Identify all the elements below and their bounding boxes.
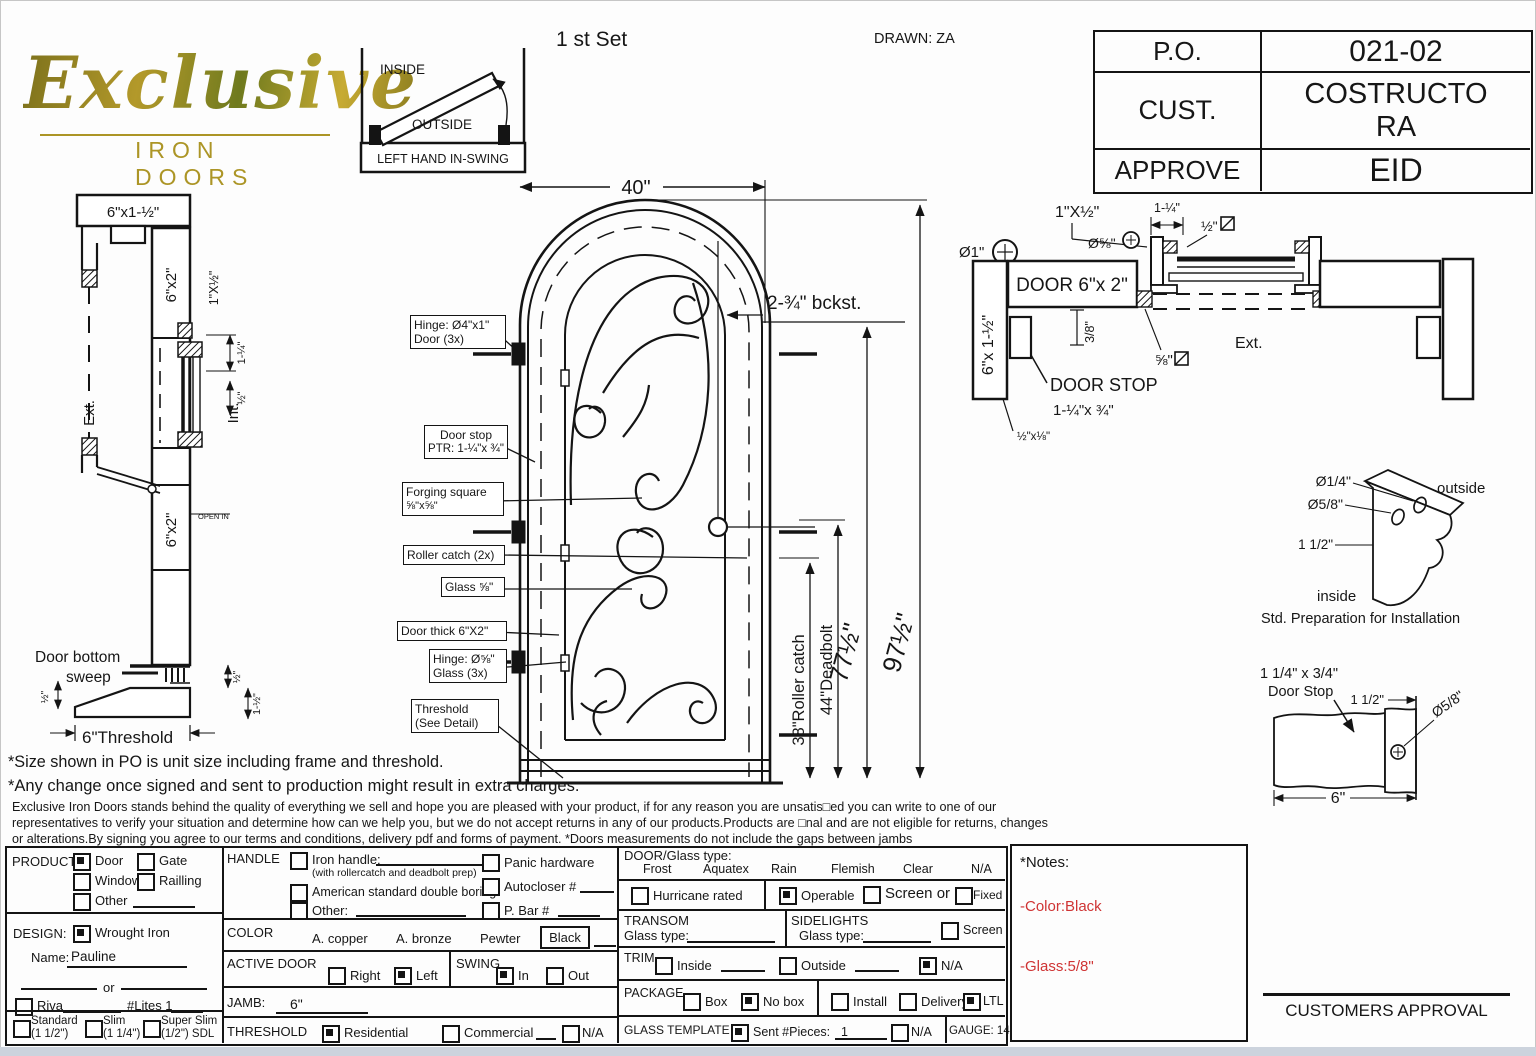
install-label: Install — [853, 994, 887, 1009]
deadbolt-dim-label: 44"Deadbolt — [818, 624, 836, 715]
checkbox-threshold-na[interactable] — [562, 1025, 580, 1043]
slim-size-label: (1 1/4") — [103, 1028, 140, 1040]
checkbox-operable[interactable] — [779, 887, 797, 905]
callout-forging: Forging square ⅝"x⅝" — [402, 482, 504, 516]
hatch-block — [82, 270, 97, 287]
std-prep-detail: Ø1/4" Ø5/8" 1 1/2" outside inside Std. P… — [1255, 455, 1536, 630]
dim-half-left: ½" — [39, 690, 51, 703]
callout-threshold-line1: Threshold — [415, 702, 495, 716]
glass-clamp — [178, 432, 202, 447]
drawing-sheet: Exclusive IRON DOORS INSIDE OUTSIDE LEFT… — [0, 0, 1536, 1056]
glass-aquatex-label: Aquatex — [703, 862, 749, 876]
checkbox-trim-na[interactable] — [919, 957, 937, 975]
glass-flemish-label: Flemish — [831, 862, 875, 876]
divider — [785, 911, 787, 946]
threshold-residential-label: Residential — [344, 1025, 408, 1040]
threshold-na-label: N/A — [582, 1025, 604, 1040]
checkbox-ltl[interactable] — [963, 993, 981, 1011]
checkbox-trim-inside[interactable] — [655, 957, 673, 975]
checkbox-super-slim[interactable] — [143, 1020, 161, 1038]
threshold-commercial-label: Commercial — [464, 1025, 533, 1040]
stop-detail-title-1: 1 1/4" x 3/4" — [1260, 666, 1338, 682]
trim-label: TRIM — [624, 951, 655, 965]
form-col-mid: HANDLE Iron handle: (with rollercatch an… — [224, 848, 619, 1043]
template-na-label: N/A — [911, 1025, 932, 1039]
checkbox-product-other[interactable] — [73, 893, 91, 911]
int-label: Int. — [225, 403, 242, 424]
dia58-label: Ø⅝" — [1088, 235, 1116, 251]
or-dash-left — [21, 988, 97, 990]
door-stop-size-label: 1-¼"x ¾" — [1053, 402, 1114, 419]
stop-profile-label: 1"X½" — [207, 271, 221, 306]
threshold-label: 6"Threshold — [82, 728, 173, 747]
color-bronze-label: A. bronze — [396, 931, 452, 946]
right-jamb — [1443, 259, 1473, 399]
door-member-right — [1320, 261, 1440, 307]
template-pieces-value: 1 — [841, 1025, 848, 1039]
checkbox-fixed[interactable] — [955, 887, 973, 905]
blank-sidelights — [863, 941, 931, 943]
iron-handle-note: (with rollercatch and deadbolt prep) — [312, 867, 477, 879]
stop-profile-label: 1"X½" — [1055, 204, 1099, 221]
slim-label: Slim — [103, 1015, 125, 1027]
dim-1half-label: 1 1/2" — [1350, 692, 1384, 707]
callout-glass: Glass ⅝" — [441, 577, 505, 597]
callout-door-stop-line1: Door stop — [428, 428, 504, 442]
door-knob — [709, 518, 727, 536]
package-section: PACKAGE Box No box Install Delivery LTL — [619, 979, 1005, 1015]
form-col-right: DOOR/Glass type: Frost Aquatex Rain Flem… — [619, 848, 1005, 1043]
callout-hinge-door: Hinge: Ø4"x1" Door (3x) — [410, 315, 506, 349]
divider — [945, 1017, 947, 1043]
door-hinge — [512, 343, 525, 365]
height-total-label: 97½" — [876, 610, 920, 676]
glass-rain-label: Rain — [771, 862, 797, 876]
transom-sidelights-section: TRANSOM Glass type: SIDELIGHTS Glass typ… — [619, 909, 1005, 946]
glass-clamp — [178, 342, 202, 357]
hurricane-operable-section: Hurricane rated Operable Screen or Fixed — [619, 879, 1005, 909]
divider — [764, 881, 766, 909]
template-sent-label: Sent #Pieces: — [753, 1025, 830, 1039]
trim-inside-label: Inside — [677, 958, 712, 973]
swing-inside-label: INSIDE — [380, 62, 425, 77]
jamb-size-label: 6"x2" — [163, 268, 180, 303]
door-stop-label: DOOR STOP — [1050, 375, 1158, 395]
strip-size-label: ½"x⅛" — [1017, 431, 1050, 443]
super-slim-label: Super Slim — [161, 1015, 217, 1027]
blank-jamb — [276, 1012, 368, 1014]
checkbox-screen[interactable] — [863, 886, 881, 904]
active-door-label: ACTIVE DOOR — [227, 956, 317, 971]
header-size-label: 6"x1-½" — [107, 204, 159, 221]
door-hinge — [512, 651, 525, 673]
blank-iron-handle — [376, 864, 486, 866]
dia58-label: Ø5/8" — [1308, 496, 1343, 512]
checkbox-hurricane[interactable] — [631, 887, 649, 905]
side-section-view: 6"x1-½" 6"x2" 1"X½" 1-¼" ½" Ext. Int. OP… — [30, 185, 315, 750]
logo-word: Exclusive — [23, 40, 418, 125]
dia58-label: Ø5/8" — [1429, 687, 1467, 720]
notes-glass: -Glass:5/8" — [1020, 958, 1094, 975]
american-boring-label: American standard double boring — [312, 885, 496, 899]
product-door-label: Door — [95, 853, 123, 868]
product-window-label: Window — [95, 873, 141, 888]
design-name-value: Pauline — [71, 949, 116, 964]
logo-subtitle: IRON DOORS — [135, 137, 345, 191]
sidelights-label: SIDELIGHTS — [791, 913, 868, 928]
drawn-by-label: DRAWN: ZA — [874, 31, 955, 47]
design-name-label: Name: — [31, 950, 69, 965]
logo: Exclusive IRON DOORS — [15, 40, 345, 170]
package-no-box-label: No box — [763, 994, 804, 1009]
swing-label: SWING — [456, 956, 500, 971]
outside-label: outside — [1437, 480, 1485, 497]
product-section: PRODUCT: Door Gate Window Railling Other — [7, 848, 224, 912]
design-or-label: or — [103, 980, 115, 995]
blank-color — [594, 945, 616, 947]
glass-type-section: DOOR/Glass type: Frost Aquatex Rain Flem… — [619, 848, 1005, 879]
checkbox-package-no-box[interactable] — [741, 993, 759, 1011]
door-member-label: DOOR 6"x 2" — [1016, 275, 1128, 296]
width-dim-label: 40" — [621, 177, 650, 199]
lower-jamb-size-label: 6"x2" — [163, 513, 180, 548]
checkbox-panic-hardware[interactable] — [482, 854, 500, 872]
po-value-cell: 021-02 — [1262, 32, 1530, 73]
dim-38-label: 3/8" — [1083, 321, 1097, 343]
blank-product-other — [133, 906, 195, 908]
jamb-section: JAMB: 6" — [224, 986, 619, 1016]
glass-hinge — [561, 655, 569, 671]
disclaimer-line4: representatives to verify your situation… — [12, 816, 1048, 830]
callout-forging-line1: Forging square — [406, 485, 500, 499]
callout-threshold-line2: (See Detail) — [415, 716, 495, 730]
checkbox-iron-handle[interactable] — [290, 852, 308, 870]
color-copper-label: A. copper — [312, 931, 368, 946]
callout-roller: Roller catch (2x) — [403, 545, 505, 565]
sidelights-screen-label: Screen — [963, 923, 1003, 937]
blank-trim-inside — [721, 970, 765, 972]
approve-label-cell: APPROVE — [1095, 150, 1262, 191]
iron-handle-label: Iron handle: — [312, 852, 381, 867]
approve-value-cell: EID — [1262, 150, 1530, 191]
blank-transom — [687, 941, 775, 943]
color-pewter-label: Pewter — [480, 931, 520, 946]
color-section: COLOR A. copper A. bronze Pewter Black — [224, 918, 619, 950]
dim-1half-right: 1-½" — [251, 693, 263, 715]
checkbox-swing-in[interactable] — [496, 967, 514, 985]
operable-label: Operable — [801, 888, 854, 903]
checkbox-product-door[interactable] — [73, 853, 91, 871]
callout-forging-line2: ⅝"x⅝" — [406, 499, 500, 513]
jamb-block-icon — [498, 125, 510, 145]
std-prep-caption: Std. Preparation for Installation — [1261, 611, 1460, 627]
transom-glass-label: Glass type: — [624, 928, 689, 943]
blank-pieces — [835, 1038, 887, 1040]
dim-1q: 1-¼" — [236, 341, 248, 364]
glass-template-section: GLASS TEMPLATE Sent #Pieces: 1 N/A GAUGE… — [619, 1015, 1005, 1043]
checkbox-product-window[interactable] — [73, 873, 91, 891]
door-stop-detail: 1 1/4" x 3/4" Door Stop 1 1/2" Ø5/8" 6" — [1258, 660, 1482, 810]
design-section: DESIGN: Wrought Iron Name: Pauline or Ri… — [7, 912, 224, 1010]
panic-hardware-label: Panic hardware — [504, 855, 594, 870]
disclaimer-line3: Exclusive Iron Doors stands behind the q… — [12, 800, 996, 814]
dim-6-label: 6" — [1331, 790, 1346, 807]
glass-type-label: DOOR/Glass type: — [624, 848, 732, 863]
active-left-label: Left — [416, 968, 438, 983]
glass-frost-label: Frost — [643, 862, 671, 876]
hatch-block — [82, 438, 97, 455]
glass-clear-label: Clear — [903, 862, 933, 876]
notes-title: *Notes: — [1020, 854, 1069, 871]
checkbox-product-railing[interactable] — [137, 873, 155, 891]
checkbox-autocloser[interactable] — [482, 878, 500, 896]
glass-hinge — [561, 545, 569, 561]
order-form: PRODUCT: Door Gate Window Railling Other… — [5, 846, 1008, 1046]
ext-label: Ext. — [81, 400, 98, 426]
color-label: COLOR — [227, 925, 273, 940]
stop-detail-title-2: Door Stop — [1268, 684, 1333, 700]
callout-door-stop: Door stop PTR: 1-¼"x ¾" — [424, 425, 508, 459]
checkbox-slim[interactable] — [85, 1020, 103, 1038]
blank-design-name — [67, 966, 187, 968]
scrollwork-ornament — [571, 276, 716, 735]
glass-hinge — [561, 370, 569, 386]
callout-hinge-glass-line1: Hinge: Ø⅝" — [433, 652, 503, 666]
divider — [449, 952, 451, 986]
cust-label-cell: CUST. — [1095, 73, 1262, 150]
customers-approval-label: CUSTOMERS APPROVAL — [1263, 1001, 1510, 1021]
trim-outside-label: Outside — [801, 958, 846, 973]
dim-half-right: ½" — [231, 670, 243, 683]
checkbox-american-boring[interactable] — [290, 884, 308, 902]
p-bar-label: P. Bar # — [504, 903, 549, 918]
checkbox-template-na[interactable] — [891, 1024, 909, 1042]
sweep-label-2: sweep — [66, 669, 111, 686]
autocloser-label: Autocloser # — [504, 879, 576, 894]
notes-color: -Color:Black — [1020, 898, 1102, 915]
ext-label: Ext. — [1235, 335, 1263, 352]
glass-template-label: GLASS TEMPLATE — [624, 1023, 730, 1037]
standard-label: Standard — [31, 1015, 78, 1027]
head-section-view: Ø1" 6"x 1-½" DOOR 6"x 2" 3/8" 1"X½" Ø⅝" … — [955, 195, 1536, 450]
po-table: P.O. 021-02 CUST. COSTRUCTORA APPROVE EI… — [1093, 30, 1533, 194]
handle-section: HANDLE Iron handle: (with rollercatch an… — [224, 848, 619, 918]
swing-outside-label: OUTSIDE — [412, 117, 472, 132]
sidelights-glass-label: Glass type: — [799, 928, 864, 943]
cust-value: COSTRUCTORA — [1300, 78, 1492, 144]
callout-hinge-glass-line2: Glass (3x) — [433, 666, 503, 680]
dim-1q-label: 1-¼" — [1154, 201, 1180, 215]
product-other-label: Other — [95, 893, 128, 908]
blank-handle-other — [356, 915, 466, 917]
handle-label: HANDLE — [227, 851, 280, 866]
inside-label: inside — [1317, 588, 1356, 605]
checkbox-swing-out[interactable] — [546, 967, 564, 985]
threshold-section: THRESHOLD Residential Commercial N/A — [224, 1016, 619, 1043]
screen-or-label: Screen or — [885, 885, 950, 902]
sweep-label-1: Door bottom — [35, 649, 120, 666]
logo-underline — [40, 134, 330, 136]
disclaimer-line2: *Any change once signed and sent to prod… — [8, 777, 579, 796]
product-gate-label: Gate — [159, 853, 187, 868]
roller-dim-label: 38"Roller catch — [790, 634, 808, 745]
threshold-label: THRESHOLD — [227, 1024, 307, 1039]
trim-na-label: N/A — [941, 958, 963, 973]
callout-hinge-door-line1: Hinge: Ø4"x1" — [414, 318, 502, 332]
package-box-label: Box — [705, 994, 727, 1009]
swing-in-label: In — [518, 968, 529, 983]
callout-hinge-glass: Hinge: Ø⅝" Glass (3x) — [429, 649, 507, 683]
callout-door-thick: Door thick 6"X2" — [397, 621, 507, 641]
active-right-label: Right — [350, 968, 380, 983]
door-stop-member — [1010, 317, 1031, 358]
design-frame-row: Standard (1 1/2") Slim (1 1/4") Super Sl… — [7, 1010, 224, 1043]
swing-caption: LEFT HAND IN-SWING — [377, 152, 509, 166]
product-railing-label: Railling — [159, 873, 202, 888]
transom-label: TRANSOM — [624, 913, 689, 928]
checkbox-product-gate[interactable] — [137, 853, 155, 871]
blank-p-bar — [558, 915, 600, 917]
jamb-block-icon — [369, 125, 381, 145]
dia1-label: Ø1" — [959, 244, 984, 261]
dia-quarter-label: Ø1/4" — [1316, 473, 1351, 489]
ltl-label: LTL — [983, 994, 1004, 1008]
po-label-cell: P.O. — [1095, 32, 1262, 73]
handle-other-label: Other: — [312, 903, 348, 918]
door-leaf-icon — [376, 73, 499, 145]
jamb-value: 6" — [290, 996, 303, 1012]
super-slim-size-label: (1/2") SDL — [161, 1028, 214, 1040]
swing-out-label: Out — [568, 968, 589, 983]
checkbox-install[interactable] — [831, 993, 849, 1011]
color-black-selected[interactable]: Black — [540, 926, 590, 949]
fixed-label: Fixed — [973, 888, 1002, 902]
divider — [817, 981, 819, 1015]
callout-hinge-door-line2: Door (3x) — [414, 332, 502, 346]
checkbox-threshold-residential[interactable] — [322, 1025, 340, 1043]
delivery-label: Delivery — [921, 994, 968, 1009]
or-dash-right — [121, 988, 207, 990]
jamb-size-label: 6"x 1-½" — [980, 315, 997, 375]
checkbox-template-sent[interactable] — [731, 1024, 749, 1042]
hatch-block — [178, 323, 192, 338]
set-label: 1 st Set — [556, 28, 627, 52]
blank-trim-outside — [855, 970, 899, 972]
backset-label: 2-¾" bckst. — [767, 293, 861, 314]
dim-58-label: ⅝" — [1155, 352, 1173, 369]
gauge-label: GAUGE: 14 — [949, 1025, 1010, 1037]
disclaimer-line1: *Size shown in PO is unit size including… — [8, 753, 444, 772]
glass-na-label: N/A — [971, 862, 992, 876]
door-hinge — [512, 521, 525, 543]
open-in-label: OPEN IN — [198, 512, 229, 521]
checkbox-threshold-commercial[interactable] — [442, 1025, 460, 1043]
checkbox-delivery[interactable] — [899, 993, 917, 1011]
hurricane-label: Hurricane rated — [653, 888, 743, 903]
design-wrought-iron-label: Wrought Iron — [95, 925, 170, 940]
dim-1half-label: 1 1/2" — [1298, 537, 1333, 552]
blank-autocloser — [580, 891, 614, 893]
trim-section: TRIM Inside Outside N/A — [619, 946, 1005, 979]
threshold-profile — [75, 688, 190, 717]
checkbox-design-wrought-iron[interactable] — [73, 925, 91, 943]
checkbox-active-left[interactable] — [394, 967, 412, 985]
checkbox-package-box[interactable] — [683, 993, 701, 1011]
notes-panel: *Notes: -Color:Black -Glass:5/8" — [1010, 844, 1248, 1042]
signature-line[interactable] — [1263, 993, 1510, 996]
disclaimer-line5: or alterations.By signing you agree to o… — [12, 832, 912, 846]
callout-threshold: Threshold (See Detail) — [411, 699, 499, 733]
callout-door-stop-line2: PTR: 1-¼"x ¾" — [428, 442, 504, 456]
cust-value-cell: COSTRUCTORA — [1262, 73, 1530, 150]
blank-commercial — [536, 1038, 556, 1040]
standard-size-label: (1 1/2") — [31, 1028, 68, 1040]
jamb-label: JAMB: — [227, 995, 265, 1010]
swing-diagram: INSIDE OUTSIDE LEFT HAND IN-SWING — [360, 48, 526, 174]
checkbox-trim-outside[interactable] — [779, 957, 797, 975]
checkbox-active-right[interactable] — [328, 967, 346, 985]
package-label: PACKAGE — [624, 986, 684, 1000]
design-label: DESIGN: — [13, 926, 66, 941]
form-col-left: PRODUCT: Door Gate Window Railling Other… — [7, 848, 224, 1043]
checkbox-sidelights-screen[interactable] — [941, 922, 959, 940]
dim-half-label: ½" — [1201, 218, 1218, 234]
page-edge — [0, 1047, 1536, 1056]
active-swing-section: ACTIVE DOOR Right Left SWING In Out — [224, 950, 619, 986]
product-label: PRODUCT: — [12, 854, 78, 869]
checkbox-standard[interactable] — [13, 1020, 31, 1038]
